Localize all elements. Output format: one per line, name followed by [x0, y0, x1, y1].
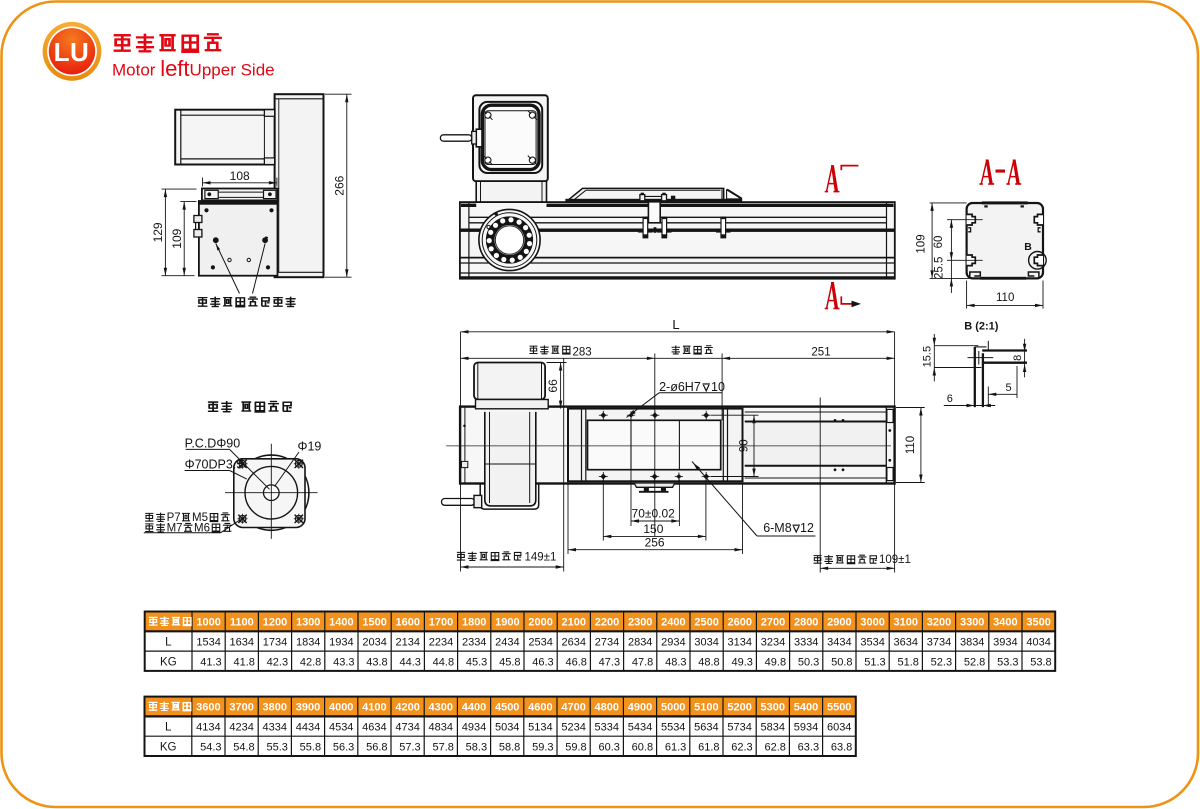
- svg-text:1534: 1534: [196, 637, 220, 649]
- svg-text:56.8: 56.8: [366, 741, 387, 753]
- svg-text:42.8: 42.8: [300, 656, 321, 668]
- svg-text:5400: 5400: [794, 702, 818, 714]
- svg-text:57.8: 57.8: [432, 741, 453, 753]
- svg-text:90: 90: [739, 439, 751, 452]
- svg-text:50.8: 50.8: [831, 656, 852, 668]
- svg-text:49.8: 49.8: [765, 656, 786, 668]
- svg-text:4500: 4500: [495, 702, 519, 714]
- svg-text:2100: 2100: [562, 617, 586, 629]
- svg-text:47.3: 47.3: [599, 656, 620, 668]
- svg-text:53.8: 53.8: [1030, 656, 1051, 668]
- svg-text:1934: 1934: [329, 637, 353, 649]
- svg-text:4000: 4000: [329, 702, 353, 714]
- svg-text:57.3: 57.3: [399, 741, 420, 753]
- svg-text:61.8: 61.8: [698, 741, 719, 753]
- svg-text:266: 266: [332, 175, 346, 195]
- svg-text:2134: 2134: [396, 637, 420, 649]
- svg-text:1000: 1000: [196, 617, 220, 629]
- svg-text:60.3: 60.3: [598, 741, 619, 753]
- svg-text:10: 10: [711, 380, 725, 394]
- svg-text:3000: 3000: [860, 617, 884, 629]
- svg-text:53.3: 53.3: [997, 656, 1018, 668]
- svg-text:66: 66: [546, 379, 560, 393]
- svg-text:3234: 3234: [761, 637, 785, 649]
- svg-text:2734: 2734: [595, 637, 619, 649]
- svg-text:5634: 5634: [694, 722, 718, 734]
- svg-text:44.3: 44.3: [399, 656, 420, 668]
- svg-text:2500: 2500: [694, 617, 718, 629]
- svg-text:5534: 5534: [661, 722, 685, 734]
- svg-text:5300: 5300: [761, 702, 785, 714]
- svg-text:8: 8: [1012, 355, 1024, 361]
- svg-text:4900: 4900: [628, 702, 652, 714]
- svg-text:49.3: 49.3: [731, 656, 752, 668]
- svg-text:L: L: [672, 317, 679, 332]
- svg-text:4300: 4300: [429, 702, 453, 714]
- svg-text:LU: LU: [54, 37, 90, 67]
- svg-text:5734: 5734: [727, 722, 751, 734]
- svg-text:3600: 3600: [196, 702, 220, 714]
- svg-text:1634: 1634: [230, 637, 254, 649]
- svg-text:1734: 1734: [263, 637, 287, 649]
- svg-text:251: 251: [811, 346, 830, 358]
- svg-text:58.3: 58.3: [466, 741, 487, 753]
- svg-text:Φ19: Φ19: [298, 440, 322, 454]
- svg-text:52.3: 52.3: [931, 656, 952, 668]
- svg-text:108: 108: [230, 169, 250, 183]
- svg-text:48.3: 48.3: [665, 656, 686, 668]
- svg-text:55.3: 55.3: [266, 741, 287, 753]
- svg-text:41.3: 41.3: [200, 656, 221, 668]
- svg-text:2634: 2634: [562, 637, 586, 649]
- svg-text:109: 109: [915, 234, 927, 253]
- svg-text:61.3: 61.3: [665, 741, 686, 753]
- svg-text:54.3: 54.3: [200, 741, 221, 753]
- svg-text:56.3: 56.3: [333, 741, 354, 753]
- svg-text:B: B: [1024, 241, 1032, 253]
- svg-text:4100: 4100: [362, 702, 386, 714]
- svg-text:5134: 5134: [528, 722, 552, 734]
- svg-text:110: 110: [996, 292, 1014, 304]
- svg-text:4434: 4434: [296, 722, 320, 734]
- svg-text:2834: 2834: [628, 637, 652, 649]
- svg-text:1600: 1600: [396, 617, 420, 629]
- svg-text:3634: 3634: [894, 637, 918, 649]
- svg-text:256: 256: [645, 536, 665, 550]
- svg-text:4734: 4734: [395, 722, 419, 734]
- svg-text:4600: 4600: [528, 702, 552, 714]
- svg-text:4034: 4034: [1026, 637, 1050, 649]
- svg-text:2300: 2300: [628, 617, 652, 629]
- svg-text:51.3: 51.3: [864, 656, 885, 668]
- svg-text:42.3: 42.3: [267, 656, 288, 668]
- svg-text:3334: 3334: [794, 637, 818, 649]
- svg-text:46.8: 46.8: [565, 656, 586, 668]
- svg-text:58.8: 58.8: [499, 741, 520, 753]
- svg-text:3100: 3100: [894, 617, 918, 629]
- svg-text:4234: 4234: [229, 722, 253, 734]
- svg-text:52.8: 52.8: [964, 656, 985, 668]
- svg-text:4200: 4200: [395, 702, 419, 714]
- svg-text:54.8: 54.8: [233, 741, 254, 753]
- svg-text:P.C.DΦ90: P.C.DΦ90: [185, 437, 241, 451]
- svg-text:1500: 1500: [362, 617, 386, 629]
- svg-text:44.8: 44.8: [433, 656, 454, 668]
- svg-text:2200: 2200: [595, 617, 619, 629]
- svg-text:3534: 3534: [860, 637, 884, 649]
- svg-text:5000: 5000: [661, 702, 685, 714]
- svg-text:60: 60: [933, 236, 945, 249]
- svg-text:5: 5: [1005, 382, 1011, 394]
- svg-text:5334: 5334: [595, 722, 619, 734]
- svg-text:4934: 4934: [462, 722, 486, 734]
- svg-text:1900: 1900: [495, 617, 519, 629]
- svg-text:2400: 2400: [661, 617, 685, 629]
- svg-text:63.8: 63.8: [831, 741, 852, 753]
- svg-text:129: 129: [151, 222, 165, 242]
- svg-text:3734: 3734: [927, 637, 951, 649]
- svg-text:12: 12: [800, 521, 814, 535]
- svg-text:5834: 5834: [761, 722, 785, 734]
- svg-text:150: 150: [643, 522, 663, 536]
- svg-text:3800: 3800: [263, 702, 287, 714]
- svg-text:4534: 4534: [329, 722, 353, 734]
- svg-text:149±1: 149±1: [525, 552, 557, 564]
- svg-text:3700: 3700: [229, 702, 253, 714]
- svg-text:2900: 2900: [827, 617, 851, 629]
- svg-text:283: 283: [573, 346, 592, 358]
- svg-text:48.8: 48.8: [698, 656, 719, 668]
- svg-text:109±1: 109±1: [879, 554, 911, 566]
- svg-text:2-ø6H7: 2-ø6H7: [659, 380, 701, 394]
- svg-text:1200: 1200: [263, 617, 287, 629]
- svg-text:5100: 5100: [694, 702, 718, 714]
- svg-text:4634: 4634: [362, 722, 386, 734]
- svg-text:4834: 4834: [429, 722, 453, 734]
- svg-text:3200: 3200: [927, 617, 951, 629]
- svg-text:47.8: 47.8: [632, 656, 653, 668]
- svg-text:45.3: 45.3: [466, 656, 487, 668]
- svg-text:3434: 3434: [827, 637, 851, 649]
- svg-text:KG: KG: [160, 656, 177, 668]
- svg-text:2334: 2334: [462, 637, 486, 649]
- svg-text:B (2:1): B (2:1): [964, 321, 999, 333]
- svg-text:3834: 3834: [960, 637, 984, 649]
- svg-text:3400: 3400: [993, 617, 1017, 629]
- svg-text:59.3: 59.3: [532, 741, 553, 753]
- svg-text:45.8: 45.8: [499, 656, 520, 668]
- svg-text:5034: 5034: [495, 722, 519, 734]
- svg-text:4700: 4700: [561, 702, 585, 714]
- svg-text:110: 110: [905, 436, 917, 454]
- svg-text:70±0.02: 70±0.02: [632, 507, 676, 521]
- svg-text:3034: 3034: [694, 637, 718, 649]
- svg-text:43.8: 43.8: [366, 656, 387, 668]
- svg-text:1700: 1700: [429, 617, 453, 629]
- svg-text:2934: 2934: [661, 637, 685, 649]
- svg-text:2034: 2034: [362, 637, 386, 649]
- svg-text:3500: 3500: [1026, 617, 1050, 629]
- svg-text:2800: 2800: [794, 617, 818, 629]
- svg-text:62.3: 62.3: [731, 741, 752, 753]
- svg-text:5234: 5234: [561, 722, 585, 734]
- svg-text:1400: 1400: [329, 617, 353, 629]
- svg-text:3900: 3900: [296, 702, 320, 714]
- svg-text:KG: KG: [160, 741, 177, 753]
- svg-text:5434: 5434: [628, 722, 652, 734]
- svg-text:5934: 5934: [794, 722, 818, 734]
- svg-text:1100: 1100: [230, 617, 254, 629]
- svg-text:50.3: 50.3: [798, 656, 819, 668]
- svg-text:Φ70DP3.5: Φ70DP3.5: [185, 458, 244, 472]
- svg-text:1300: 1300: [296, 617, 320, 629]
- svg-text:3934: 3934: [993, 637, 1017, 649]
- svg-text:L: L: [165, 722, 172, 734]
- svg-text:5200: 5200: [727, 702, 751, 714]
- svg-text:1834: 1834: [296, 637, 320, 649]
- svg-text:2600: 2600: [728, 617, 752, 629]
- svg-text:2434: 2434: [495, 637, 519, 649]
- svg-text:25.5: 25.5: [933, 257, 945, 279]
- svg-text:59.8: 59.8: [565, 741, 586, 753]
- svg-text:2700: 2700: [761, 617, 785, 629]
- svg-text:60.8: 60.8: [632, 741, 653, 753]
- svg-text:3134: 3134: [728, 637, 752, 649]
- svg-text:62.8: 62.8: [764, 741, 785, 753]
- svg-text:6034: 6034: [827, 722, 851, 734]
- svg-text:2000: 2000: [528, 617, 552, 629]
- svg-text:43.3: 43.3: [333, 656, 354, 668]
- svg-text:L: L: [165, 637, 172, 649]
- svg-text:4134: 4134: [196, 722, 220, 734]
- svg-text:109: 109: [170, 228, 184, 248]
- svg-text:6-M8: 6-M8: [763, 521, 792, 535]
- svg-text:Motor leftUpper Side: Motor leftUpper Side: [112, 56, 275, 81]
- svg-text:41.8: 41.8: [233, 656, 254, 668]
- svg-text:4334: 4334: [263, 722, 287, 734]
- svg-text:51.8: 51.8: [897, 656, 918, 668]
- svg-text:63.3: 63.3: [798, 741, 819, 753]
- svg-text:4800: 4800: [595, 702, 619, 714]
- svg-text:55.8: 55.8: [300, 741, 321, 753]
- svg-text:2534: 2534: [528, 637, 552, 649]
- svg-text:6: 6: [947, 393, 953, 405]
- svg-text:3300: 3300: [960, 617, 984, 629]
- svg-text:15.5: 15.5: [922, 346, 934, 367]
- svg-text:1800: 1800: [462, 617, 486, 629]
- svg-text:4400: 4400: [462, 702, 486, 714]
- svg-text:46.3: 46.3: [532, 656, 553, 668]
- svg-text:5500: 5500: [827, 702, 851, 714]
- svg-text:2234: 2234: [429, 637, 453, 649]
